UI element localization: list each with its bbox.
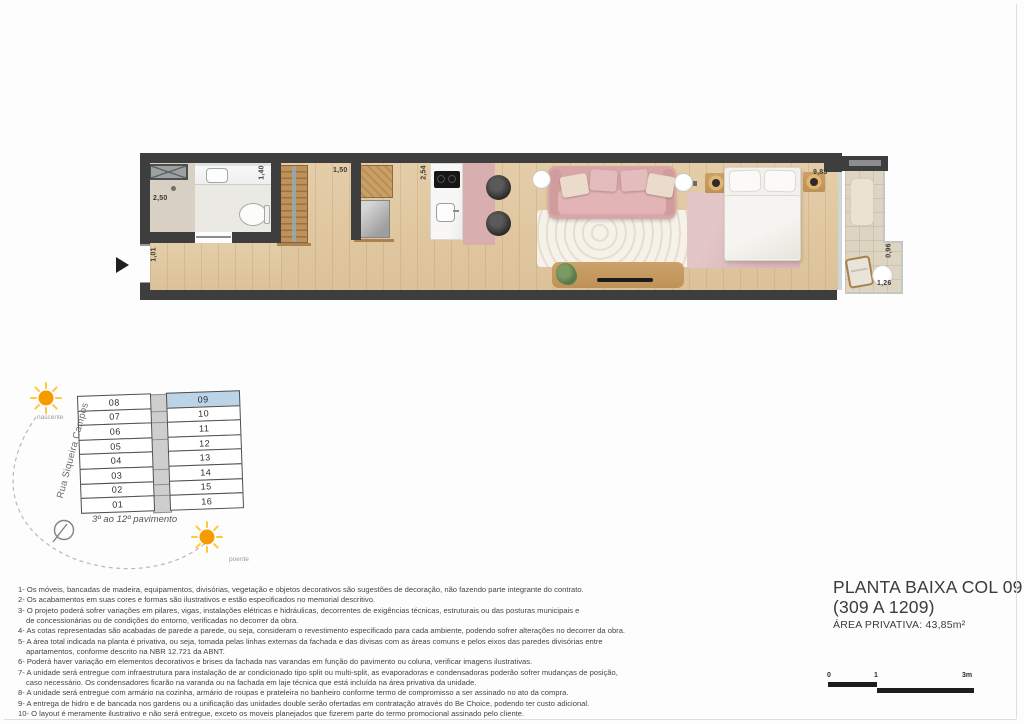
core-gap — [154, 467, 170, 482]
balcony-glass-door — [838, 172, 842, 290]
scale-segment-2 — [877, 688, 974, 693]
core-gap — [155, 496, 171, 511]
core-gap — [151, 394, 167, 409]
sheet-edge-bottom — [4, 719, 1017, 720]
toilet-tank — [264, 205, 270, 224]
plant — [556, 263, 576, 284]
bathroom-sink — [206, 168, 228, 183]
balcony-parapet — [845, 292, 903, 294]
bar-stool — [486, 211, 511, 236]
note-line: de concessionárias ou de condições do en… — [18, 616, 658, 626]
entry-arrow-icon — [116, 257, 129, 273]
note-line: 9- A entrega de hidro e de bancada nos g… — [18, 699, 658, 709]
wall-bathroom-bottom-b — [232, 232, 281, 243]
sun-east-icon — [30, 382, 62, 414]
area-value: 43,85m² — [925, 619, 965, 631]
note-line: 7- A unidade será entregue com infraestr… — [18, 668, 658, 678]
note-line: 8- A unidade será entregue com armário n… — [18, 688, 658, 698]
dim-entry: 1,01 — [151, 247, 158, 261]
wall-bathroom-right — [271, 163, 281, 232]
note-line: 4- As cotas representadas são acabadas d… — [18, 626, 658, 636]
area-label: ÁREA PRIVATIVA: — [833, 619, 922, 631]
north-indicator-icon — [50, 517, 78, 545]
balcony-grille — [849, 160, 881, 166]
core-gap — [154, 481, 170, 496]
dim-kitchen: 2,54 — [421, 165, 428, 179]
sofa-cushion — [645, 173, 675, 198]
dim-bath: 1,40 — [259, 165, 266, 179]
sofa-cushion — [620, 169, 648, 192]
corridor-floor — [150, 243, 281, 290]
key-plan-row: 01 16 — [82, 493, 245, 513]
toilet — [239, 203, 267, 226]
core-gap — [153, 452, 169, 467]
sun-west-label: poente — [229, 556, 249, 563]
apartment-floor-plan: 2,50 1,40 1,01 1,50 2,54 9,83 0,96 1,26 — [133, 153, 908, 303]
dim-shelf: 1,50 — [333, 167, 347, 174]
scale-zero: 0 — [827, 672, 831, 679]
door-jamb — [140, 244, 150, 246]
pillow — [729, 169, 762, 192]
wall-left-upper — [140, 153, 150, 245]
washing-machine — [357, 200, 390, 238]
scale-one: 1 — [874, 672, 878, 679]
wall-laundry-stub — [351, 163, 361, 240]
technical-slab — [850, 178, 874, 226]
wall-bathroom-bottom-a — [150, 232, 195, 243]
tv — [597, 278, 653, 282]
floors-range-label: 3º ao 12º pavimento — [92, 514, 177, 525]
key-plan: nascente poente 08 09 — [0, 380, 290, 590]
dim-balcony-depth: 1,26 — [877, 280, 891, 287]
sheet-edge-right — [1016, 4, 1017, 718]
core-gap — [151, 408, 167, 423]
dim-bedroom: 9,83 — [813, 169, 827, 176]
note-line: 10- O layout é meramente ilustrativo e n… — [18, 709, 658, 719]
note-line: 2- Os acabamentos em suas cores e formas… — [18, 595, 658, 605]
laundry-cabinet — [357, 165, 393, 198]
shelf-ladder — [280, 165, 308, 243]
unit-cell: 01 — [81, 495, 155, 513]
sofa-cushion — [589, 169, 617, 192]
kitchen-sink — [436, 203, 455, 222]
side-table — [674, 173, 693, 192]
scale-segment-1 — [828, 682, 877, 687]
balcony-parapet — [901, 241, 903, 294]
shower-head-icon — [171, 186, 176, 191]
unit-cell: 16 — [169, 492, 243, 510]
wall-top — [140, 153, 842, 163]
balcony-parapet — [883, 171, 885, 243]
cooktop — [434, 171, 460, 188]
key-plan-building: 08 09 07 10 06 11 05 12 04 — [78, 391, 245, 513]
note-line: 6- Poderá haver variação em elementos de… — [18, 657, 658, 667]
lounge-chair — [845, 255, 875, 289]
core-gap — [152, 423, 168, 438]
core-gap — [152, 438, 168, 453]
note-line: 5- A área total indicada na planta é pri… — [18, 637, 658, 647]
plan-title: PLANTA BAIXA COL 09 — [833, 577, 1023, 597]
legal-notes: 1- Os móveis, bancadas de madeira, equip… — [18, 585, 658, 719]
pillow — [764, 169, 797, 192]
door-jamb — [140, 282, 150, 284]
duvet — [725, 195, 800, 259]
shower-box — [149, 164, 188, 180]
plan-subtitle: (309 A 1209) — [833, 597, 1023, 617]
shelf-base — [277, 243, 311, 246]
scale-three: 3m — [962, 672, 972, 679]
floor-plan-sheet: 2,50 1,40 1,01 1,50 2,54 9,83 0,96 1,26 … — [0, 0, 1024, 724]
sun-east-label: nascente — [37, 414, 63, 421]
note-line: 1- Os móveis, bancadas de madeira, equip… — [18, 585, 658, 595]
dim-balcony-width: 0,96 — [886, 243, 893, 257]
side-table — [532, 170, 551, 189]
note-line: 3- O projeto poderá sofrer variações em … — [18, 606, 658, 616]
bathroom-door — [196, 236, 231, 238]
wall-bottom — [140, 290, 837, 300]
note-line: apartamentos, conforme descrito na NBR 1… — [18, 647, 658, 657]
title-block: PLANTA BAIXA COL 09 (309 A 1209) ÁREA PR… — [833, 577, 1023, 631]
wall-left-lower — [140, 283, 150, 300]
dim-shower: 2,50 — [153, 195, 167, 202]
bar-stool — [486, 175, 511, 200]
sun-west-icon — [191, 521, 223, 553]
note-line: caso necessário. Os condensadores ficarã… — [18, 678, 658, 688]
